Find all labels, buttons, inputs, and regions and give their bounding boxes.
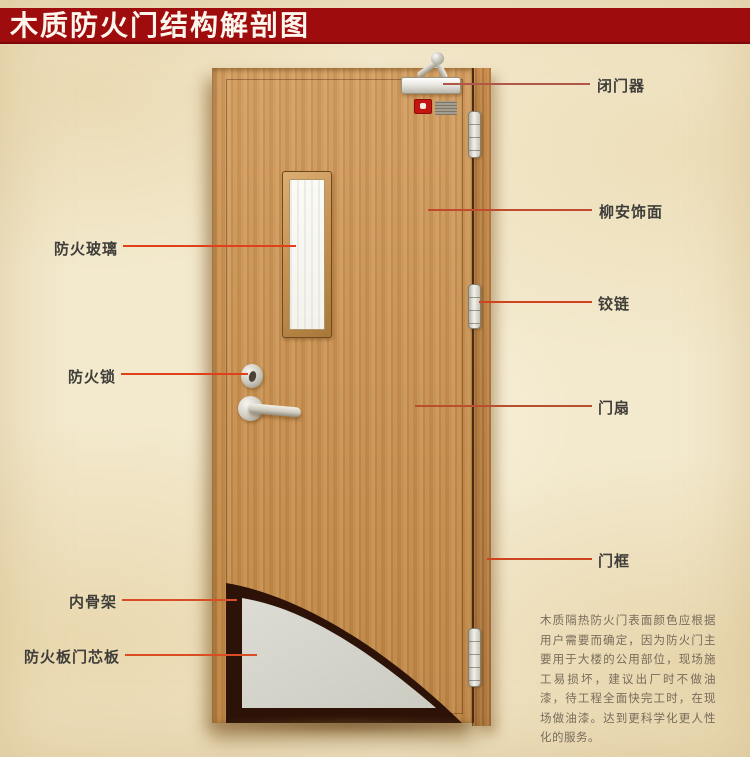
door-shadow (198, 719, 504, 735)
label-core-board: 防火板门芯板 (24, 646, 120, 667)
leader-line-door-leaf (415, 405, 592, 407)
label-door-frame: 门框 (598, 550, 630, 571)
leader-line-inner-skeleton (122, 599, 237, 601)
label-door-leaf: 门扇 (598, 397, 630, 418)
leader-line-door-frame (487, 558, 592, 560)
label-hinge: 铰链 (598, 293, 630, 314)
door-closer-elbow (431, 52, 444, 65)
label-inner-skeleton: 内骨架 (69, 591, 117, 612)
hinge-middle (468, 284, 481, 329)
leader-line-fire-glass (123, 245, 296, 247)
note-text: 木质隔热防火门表面颜色应根据用户需要而确定，因为防火门主要用于大楼的公用部位，现… (540, 612, 716, 749)
diagram-background: 木质防火门结构解剖图 (0, 0, 750, 757)
page-title: 木质防火门结构解剖图 (10, 8, 310, 42)
leader-line-veneer (428, 209, 592, 211)
leader-line-hinge (479, 301, 592, 303)
leader-line-core-board (125, 654, 257, 656)
hinge-top (468, 111, 481, 158)
door-leaf (212, 68, 474, 723)
alarm-indicator-light (420, 103, 426, 109)
label-fire-lock: 防火锁 (68, 366, 116, 387)
label-veneer: 柳安饰面 (599, 201, 663, 222)
label-fire-glass: 防火玻璃 (54, 238, 118, 259)
keyhole (248, 370, 257, 382)
glass-pane (289, 179, 325, 330)
door-closer-body (401, 77, 461, 94)
fire-lock-cylinder (241, 364, 263, 388)
cutaway-section (212, 580, 472, 723)
leader-line-door-closer (443, 83, 590, 85)
title-banner: 木质防火门结构解剖图 (0, 8, 750, 44)
core-board-shape (242, 598, 436, 708)
label-door-closer: 闭门器 (597, 75, 645, 96)
leader-line-fire-lock (121, 373, 248, 375)
alarm-indicator (414, 99, 432, 114)
hinge-bottom (468, 628, 481, 687)
fire-glass-window (282, 171, 332, 338)
vent-plate (435, 101, 457, 115)
